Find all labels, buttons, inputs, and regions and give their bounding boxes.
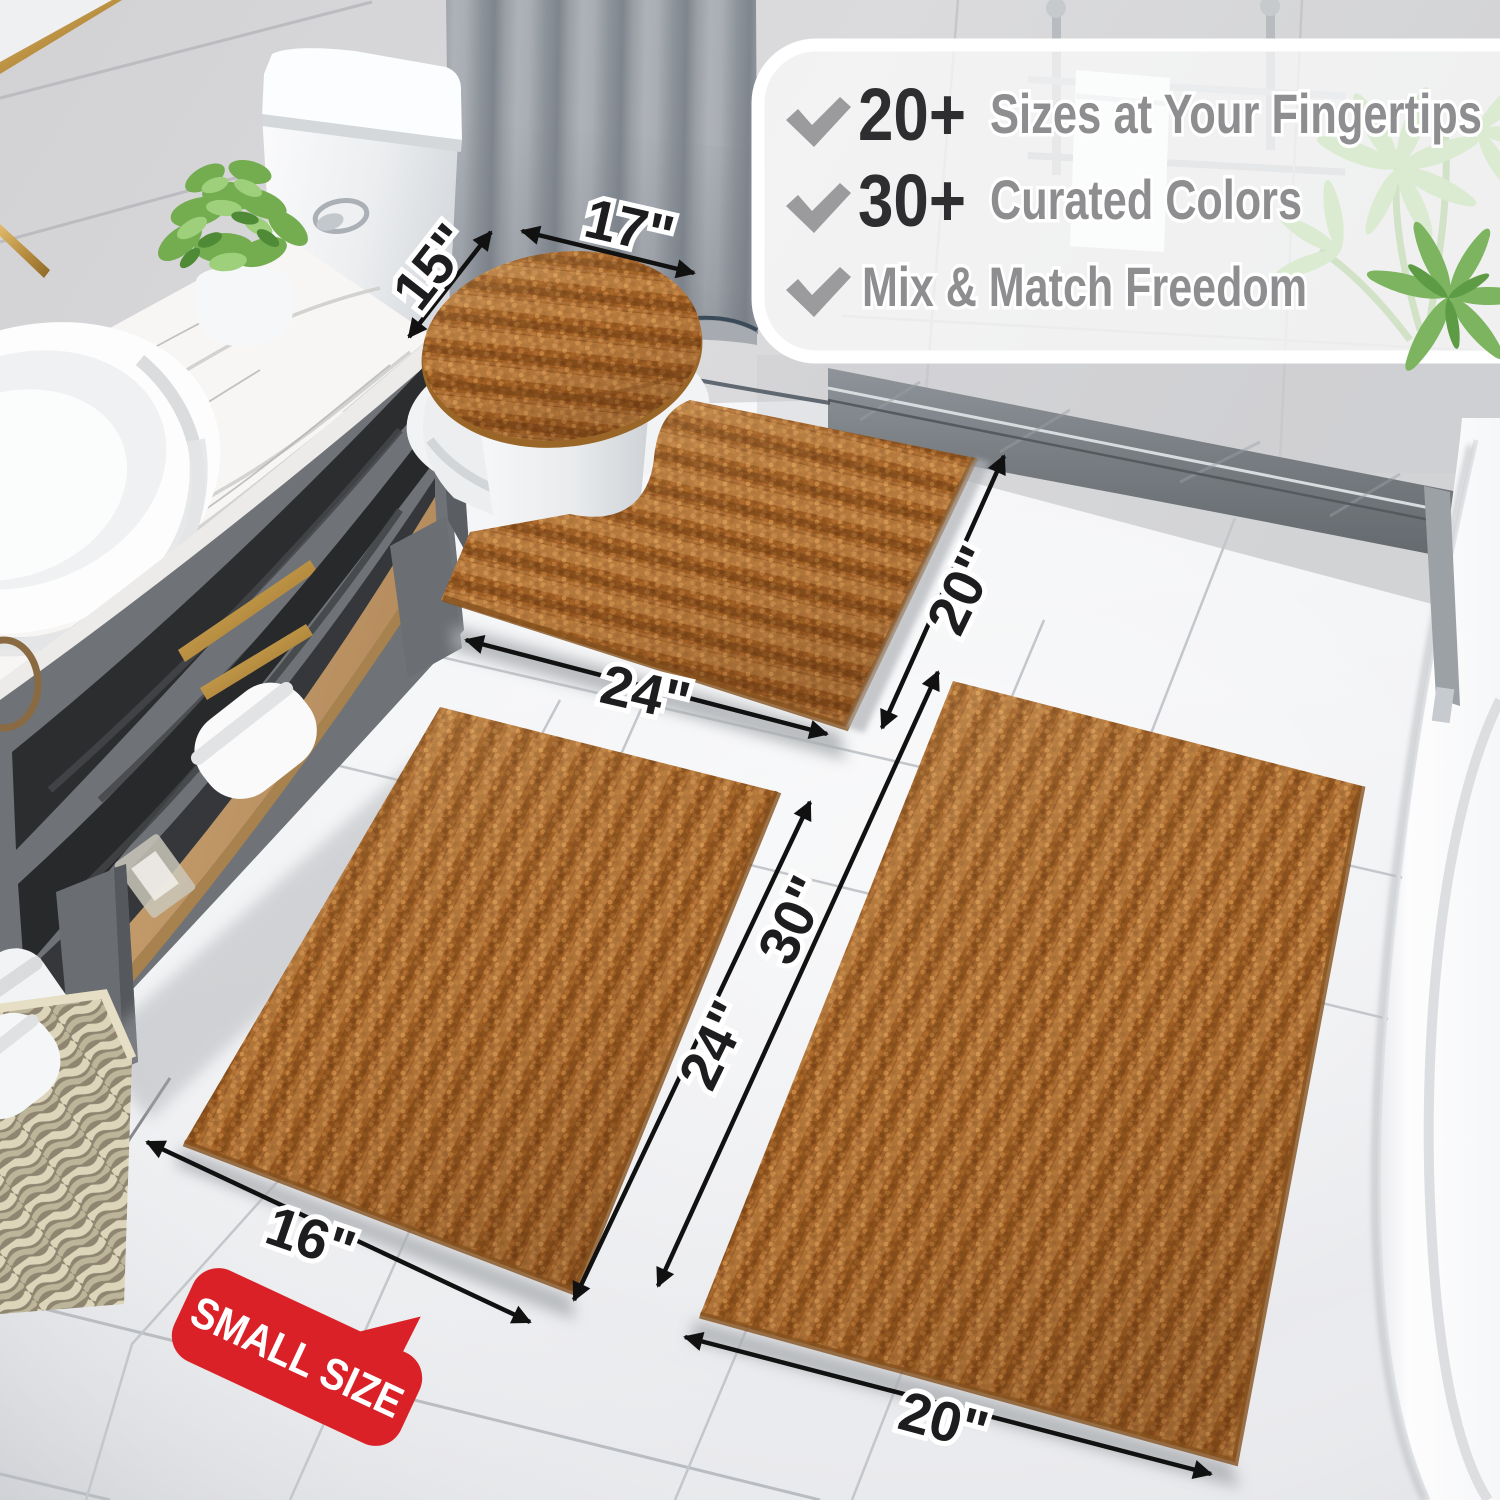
svg-text:30+: 30+ <box>858 159 966 242</box>
svg-text:Sizes at Your Fingertips: Sizes at Your Fingertips <box>990 82 1482 145</box>
svg-text:Curated Colors: Curated Colors <box>990 168 1302 231</box>
svg-text:Mix & Match Freedom: Mix & Match Freedom <box>862 255 1307 318</box>
svg-text:20+: 20+ <box>858 73 966 156</box>
